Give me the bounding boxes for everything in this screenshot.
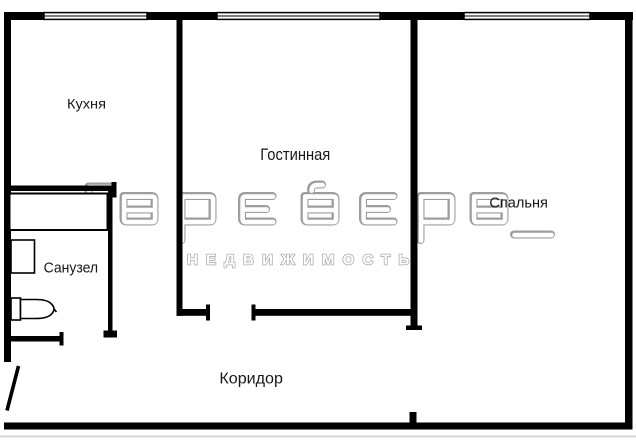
svg-text:Кухня: Кухня [67, 96, 106, 111]
svg-text:НЕДВИЖИМОСТЬ: НЕДВИЖИМОСТЬ [187, 252, 417, 269]
svg-text:Гостинная: Гостинная [260, 146, 330, 164]
svg-text:Коридор: Коридор [219, 371, 283, 388]
svg-text:Санузел: Санузел [44, 259, 99, 276]
svg-text:Спальня: Спальня [489, 194, 548, 211]
